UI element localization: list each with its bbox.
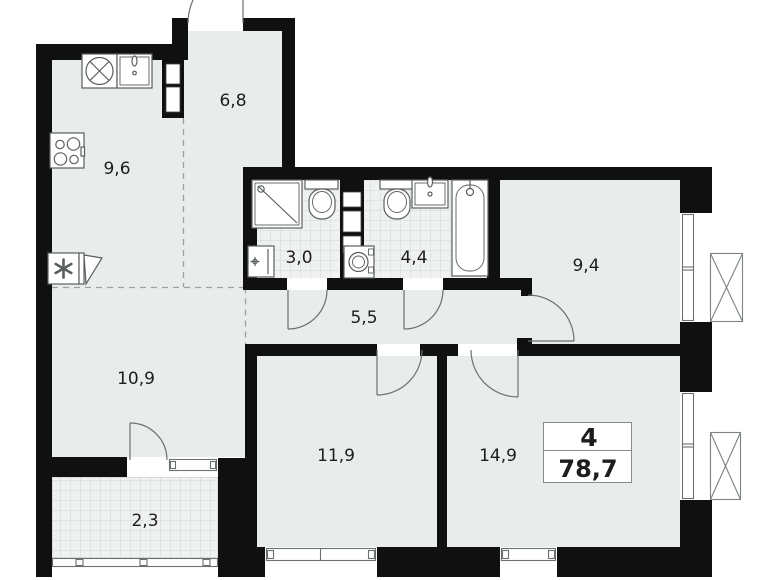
kitchen-basin [117,54,152,88]
room-label-bedroom-left: 11,9 [317,446,355,466]
shower-tray [252,180,302,228]
badge-rooms-count: 4 [580,423,597,452]
wall-bottom-2 [377,547,500,577]
wall-bath-bottom-3 [443,278,532,290]
wall-hall-right [282,18,295,170]
badge-total-area: 78,7 [558,455,617,483]
bath-shaft-niche [343,211,361,232]
room-corridor-floor [245,290,521,344]
wall-bath-top [243,167,712,180]
kitchen-sink [82,54,117,88]
room-label-bath-small: 3,0 [285,248,312,268]
exterior-unit-bottom [711,433,741,500]
window-living-room [170,460,217,471]
washing-machine [344,246,374,278]
wall-bottom-1 [218,547,265,577]
floor-plan: 9,6 6,8 3,0 4,4 9,4 5,5 10,9 11,9 14,9 2… [0,0,780,580]
window-bedroom-bottom [502,549,556,561]
wall-right-bottom [680,500,712,577]
room-label-hall: 6,8 [219,91,246,111]
stove [50,133,85,168]
balcony-door-opening [127,457,168,477]
wall-right-mid [680,322,712,392]
room-label-corridor: 5,5 [350,308,377,328]
wall-living-bottom [52,457,127,477]
wall-corridor-bottom-mid [420,344,458,356]
room-label-bedroom-bottom: 14,9 [479,446,517,466]
bath-shaft-niche [343,192,361,207]
wall-bath-bottom-1 [243,278,287,290]
wall-left [36,44,52,577]
kitchen-shaft-niche [166,64,180,84]
room-label-living: 10,9 [117,369,155,389]
room-label-balcony: 2,3 [131,511,158,531]
balcony-glazing [53,559,218,567]
wall-bedroom-divider [437,356,447,547]
wall-corridor-bottom-right [517,344,680,356]
window-bedroom-left [267,549,376,561]
wall-bath-right [487,167,500,290]
kitchen-shaft-niche [166,87,180,112]
wall-bottom-3 [557,547,680,577]
window-bedroom-right [683,215,694,321]
floor-plan-canvas: 9,6 6,8 3,0 4,4 9,4 5,5 10,9 11,9 14,9 2… [0,0,780,580]
wall-corridor-bottom-left [247,344,377,356]
wall-bath-bottom-2 [327,278,403,290]
entrance-opening [188,18,243,31]
corner-washbasin [248,246,274,277]
room-label-bedroom-right: 9,4 [572,256,599,276]
room-label-bath-large: 4,4 [400,248,427,268]
wall-entry-jog [172,18,188,60]
info-badge: 4 78,7 [544,423,632,484]
room-hall-lower-floor [183,167,245,288]
bathtub [452,180,488,276]
exterior-unit-top [711,254,743,322]
washbasin [412,177,448,208]
window-bedroom-bottom-right [683,394,694,499]
wall-right-top [680,167,712,213]
room-label-kitchen: 9,6 [103,159,130,179]
